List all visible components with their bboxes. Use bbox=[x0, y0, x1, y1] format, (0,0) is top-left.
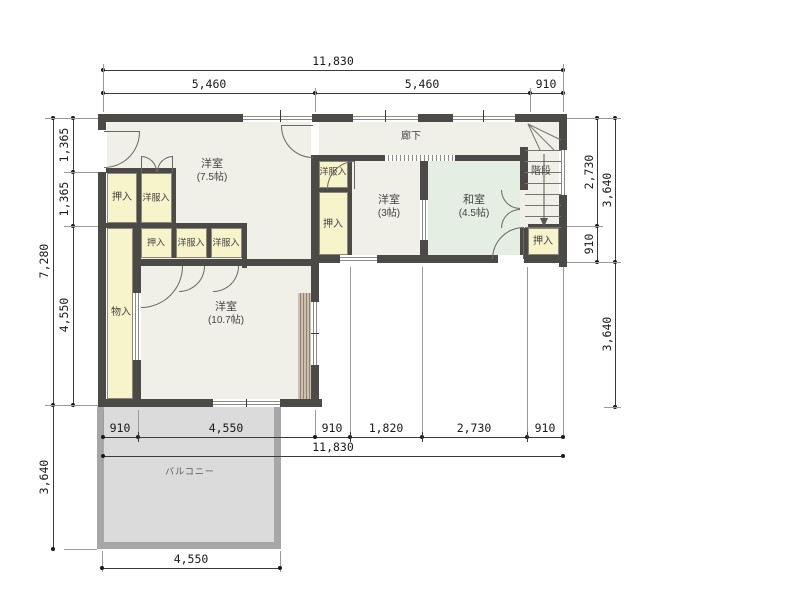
dim-left-seg2: 1,365 bbox=[57, 182, 71, 217]
dim-right-seg2: 910 bbox=[582, 234, 596, 255]
wall bbox=[455, 155, 524, 161]
extension-line bbox=[567, 226, 603, 227]
dim-line bbox=[102, 568, 280, 569]
dim-right-seg1: 2,730 bbox=[582, 155, 596, 190]
wall bbox=[311, 365, 319, 407]
dim-left-balcony: 3,640 bbox=[37, 460, 51, 495]
dim-dot bbox=[561, 454, 565, 458]
closet-label-oshiire: 押入 bbox=[147, 237, 165, 248]
dim-tick bbox=[527, 432, 528, 442]
dim-dot bbox=[101, 454, 105, 458]
wall bbox=[98, 223, 247, 228]
room-label-monoire: 物入 bbox=[111, 307, 131, 320]
dim-bottom-seg3: 910 bbox=[322, 421, 343, 435]
extension-line bbox=[103, 410, 104, 435]
room-name: 洋室 bbox=[215, 301, 237, 313]
sliding-door bbox=[385, 155, 455, 161]
dim-tick bbox=[422, 432, 423, 442]
dim-dot bbox=[51, 547, 55, 551]
wall bbox=[133, 259, 311, 266]
dim-line bbox=[597, 118, 598, 262]
extension-line bbox=[527, 267, 528, 435]
dim-line bbox=[53, 118, 54, 549]
extension-line bbox=[563, 267, 564, 435]
room-label-corridor: 廊下 bbox=[401, 131, 421, 144]
dim-bottom-seg6: 910 bbox=[535, 421, 556, 435]
dim-top-seg1: 5,460 bbox=[192, 77, 227, 91]
dim-top-total: 11,830 bbox=[312, 54, 354, 68]
dim-right-lower: 3,640 bbox=[600, 317, 614, 352]
room-size: (10.7帖) bbox=[208, 315, 244, 328]
window-tick bbox=[246, 399, 247, 407]
room-name: 洋室 bbox=[201, 158, 223, 170]
dim-tick bbox=[138, 432, 139, 442]
wall bbox=[312, 114, 353, 122]
closet-label-yofuku: 洋服入 bbox=[319, 166, 346, 177]
extension-line bbox=[567, 118, 621, 119]
extension-line bbox=[64, 549, 97, 550]
door-leaf bbox=[104, 131, 140, 132]
window-tick bbox=[483, 110, 484, 122]
dim-line bbox=[103, 70, 563, 71]
extension-line bbox=[45, 405, 98, 406]
window bbox=[453, 114, 515, 122]
balcony-wall-right bbox=[274, 407, 281, 549]
room-size: (4.5帖) bbox=[459, 208, 490, 221]
extension-line bbox=[567, 262, 621, 263]
dim-right-upper: 3,640 bbox=[600, 173, 614, 208]
room-name: 洋室 bbox=[378, 194, 400, 206]
dim-balcony-width: 4,550 bbox=[174, 552, 209, 566]
wall bbox=[98, 172, 106, 403]
stair-treads bbox=[525, 150, 561, 229]
room-size: (7.5帖) bbox=[197, 172, 228, 185]
extension-line bbox=[563, 64, 564, 112]
wall bbox=[133, 360, 141, 399]
extension-line bbox=[103, 64, 104, 112]
wall bbox=[137, 168, 141, 228]
door-leaf bbox=[172, 156, 173, 172]
room-label-balcony: バルコニー bbox=[165, 466, 215, 477]
window bbox=[243, 114, 312, 122]
door-leaf bbox=[281, 125, 313, 126]
room-name: 和室 bbox=[463, 194, 485, 206]
room-label-western-3: 洋室 (3帖) bbox=[378, 194, 400, 220]
extension-line bbox=[422, 267, 423, 435]
extension-line bbox=[64, 172, 98, 173]
closet-label-oshiire: 押入 bbox=[323, 219, 343, 232]
dim-line bbox=[103, 437, 563, 438]
dim-top-seg3: 910 bbox=[536, 77, 557, 91]
dim-bottom-seg1: 910 bbox=[110, 421, 131, 435]
extension-line bbox=[315, 410, 316, 435]
wall bbox=[172, 168, 176, 258]
extension-line bbox=[350, 267, 351, 435]
dim-line bbox=[73, 118, 74, 405]
sliding-opening bbox=[133, 293, 141, 360]
dim-dot bbox=[100, 566, 104, 570]
wall bbox=[311, 155, 319, 259]
window bbox=[340, 255, 377, 263]
window-tick bbox=[385, 110, 386, 122]
dim-line bbox=[103, 456, 563, 457]
closet-label-oshiire: 押入 bbox=[533, 236, 553, 249]
wall bbox=[98, 114, 243, 122]
door-leaf bbox=[354, 161, 355, 189]
room-label-western-107: 洋室 (10.7帖) bbox=[208, 301, 244, 327]
closet-label-yofuku: 洋服入 bbox=[177, 237, 204, 248]
dim-left-seg1: 1,365 bbox=[57, 128, 71, 163]
dim-bottom-total: 11,830 bbox=[312, 440, 354, 454]
dim-bottom-seg4: 1,820 bbox=[369, 421, 404, 435]
door-leaf bbox=[141, 156, 142, 172]
extension-line bbox=[604, 407, 621, 408]
closet-label-oshiire: 押入 bbox=[112, 192, 132, 205]
extension-line bbox=[530, 88, 531, 112]
balcony-wall-bottom bbox=[97, 542, 281, 549]
door-leaf bbox=[523, 227, 524, 259]
dim-line bbox=[103, 93, 563, 94]
dim-left-seg3: 4,550 bbox=[57, 298, 71, 333]
room-size: (3帖) bbox=[378, 208, 400, 221]
wall bbox=[311, 263, 319, 302]
extension-line bbox=[64, 226, 98, 227]
dim-left-total: 7,280 bbox=[37, 244, 51, 279]
dim-dot bbox=[101, 435, 105, 439]
wall bbox=[133, 263, 141, 293]
extension-line bbox=[315, 88, 316, 112]
dim-dot bbox=[278, 566, 282, 570]
window-tick bbox=[280, 110, 281, 122]
room-label-western-75: 洋室 (7.5帖) bbox=[197, 158, 228, 184]
dim-bottom-seg5: 2,730 bbox=[457, 421, 492, 435]
wall bbox=[418, 114, 453, 122]
wall bbox=[98, 114, 106, 130]
wall bbox=[420, 240, 428, 255]
sliding-opening bbox=[420, 200, 428, 240]
floor-plan-canvas: 洋室 (7.5帖) 洋室 (10.7帖) 洋室 (3帖) 和室 (4.5帖) 廊… bbox=[0, 0, 800, 600]
wall bbox=[420, 155, 428, 200]
wall bbox=[207, 228, 211, 258]
dim-top-seg2: 5,460 bbox=[405, 77, 440, 91]
wall bbox=[133, 228, 141, 263]
wall bbox=[559, 114, 567, 150]
closet-label-yofuku: 洋服入 bbox=[142, 192, 169, 203]
wall bbox=[377, 255, 498, 263]
shutter-panel bbox=[298, 293, 311, 399]
wall bbox=[98, 399, 213, 407]
dim-bottom-seg2: 4,550 bbox=[209, 421, 244, 435]
dim-dot bbox=[313, 435, 317, 439]
extension-line bbox=[45, 118, 98, 119]
closet-label-yofuku: 洋服入 bbox=[212, 237, 239, 248]
dim-dot bbox=[561, 435, 565, 439]
room-label-japanese-45: 和室 (4.5帖) bbox=[459, 194, 490, 220]
room-label-stairs: 階段 bbox=[531, 166, 551, 179]
